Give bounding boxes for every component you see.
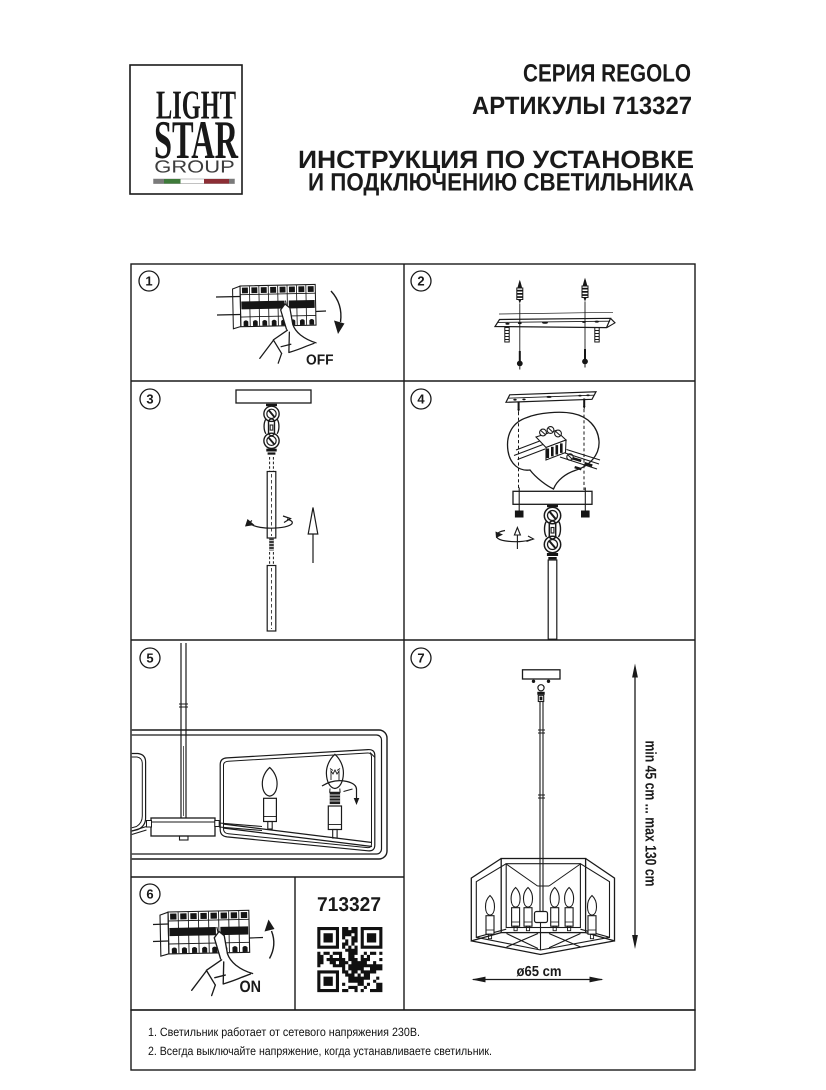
- svg-text:713327: 713327: [317, 894, 381, 916]
- svg-text:ø65 cm: ø65 cm: [517, 964, 562, 980]
- svg-text:СЕРИЯ REGOLO: СЕРИЯ REGOLO: [523, 60, 691, 88]
- svg-text:2. Всегда выключайте напряжени: 2. Всегда выключайте напряжение, когда у…: [148, 1044, 492, 1058]
- svg-text:min 45 cm ... max 130 cm: min 45 cm ... max 130 cm: [642, 741, 659, 887]
- svg-text:7: 7: [417, 651, 424, 666]
- svg-text:6: 6: [146, 887, 153, 902]
- svg-text:АРТИКУЛЫ 713327: АРТИКУЛЫ 713327: [472, 92, 692, 120]
- svg-text:5: 5: [146, 651, 153, 666]
- svg-text:1. Светильник работает от сете: 1. Светильник работает от сетевого напря…: [148, 1025, 420, 1039]
- svg-text:4: 4: [417, 392, 425, 407]
- svg-text:И ПОДКЛЮЧЕНИЮ СВЕТИЛЬНИКА: И ПОДКЛЮЧЕНИЮ СВЕТИЛЬНИКА: [308, 169, 694, 197]
- svg-text:ON: ON: [240, 978, 262, 996]
- svg-text:3: 3: [146, 392, 153, 407]
- svg-text:GROUP: GROUP: [154, 157, 235, 177]
- svg-text:1: 1: [145, 274, 152, 289]
- svg-text:2: 2: [417, 274, 424, 289]
- svg-text:OFF: OFF: [306, 353, 334, 369]
